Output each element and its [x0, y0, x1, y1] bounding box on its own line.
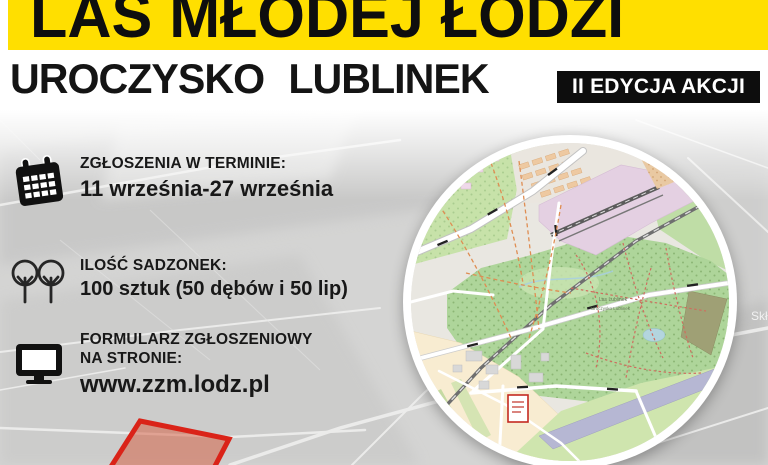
- section-form: FORMULARZ ZGŁOSZENIOWY NA STRONIE: www.z…: [14, 330, 313, 398]
- form-label-line2: NA STRONIE:: [80, 349, 313, 368]
- section-dates: ZGŁOSZENIA W TERMINIE: 11 września-27 wr…: [12, 154, 333, 213]
- map-area-label: Uroczysko Lublinek: [591, 306, 631, 311]
- dates-label: ZGŁOSZENIA W TERMINIE:: [80, 154, 333, 173]
- map-inset-ring: Las Lublinek Uroczysko Lublinek: [403, 135, 737, 465]
- background-partial-label: Skła: [751, 309, 768, 323]
- map-graphic: Las Lublinek Uroczysko Lublinek: [411, 143, 729, 461]
- map-forest-label: Las Lublinek: [599, 297, 628, 303]
- saplings-value: 100 sztuk (50 dębów i 50 lip): [80, 278, 348, 301]
- poster-title: LAS MŁODEJ ŁODZI: [30, 0, 624, 48]
- monitor-icon: [14, 342, 64, 391]
- website-url: www.zzm.lodz.pl: [80, 371, 313, 399]
- planting-area-marker: [95, 413, 245, 465]
- map-label-box: [508, 395, 528, 422]
- calendar-icon: [12, 154, 66, 213]
- form-label-line1: FORMULARZ ZGŁOSZENIOWY: [80, 330, 313, 349]
- edition-badge: II EDYCJA AKCJI: [557, 71, 760, 103]
- saplings-label: ILOŚĆ SADZONEK:: [80, 256, 348, 275]
- trees-icon: [8, 256, 72, 309]
- poster-root: Las Lublinek Uroczysko Lublinek Skła LAS…: [0, 0, 768, 465]
- poster-subtitle: UROCZYSKO LUBLINEK: [10, 56, 489, 102]
- section-saplings: ILOŚĆ SADZONEK: 100 sztuk (50 dębów i 50…: [8, 256, 348, 309]
- title-banner: LAS MŁODEJ ŁODZI: [8, 0, 768, 50]
- dates-value: 11 września-27 września: [80, 176, 333, 201]
- map-inset: Las Lublinek Uroczysko Lublinek: [411, 143, 729, 461]
